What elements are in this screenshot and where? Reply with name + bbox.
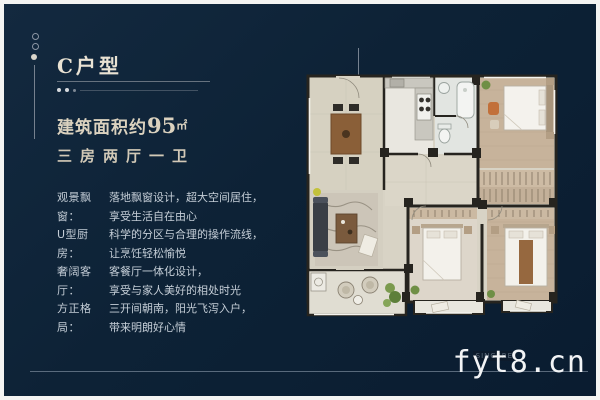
deco-dot-icon <box>32 33 39 40</box>
room-layout-line: 三房两厅一卫 <box>57 145 195 166</box>
building-area-line: 建筑面积约95㎡ <box>57 113 187 138</box>
feature-label: U型厨房： <box>57 226 109 263</box>
feature-label: 方正格局： <box>57 300 109 337</box>
deco-line <box>80 90 198 91</box>
deco-dot-icon <box>73 89 76 92</box>
deco-vertical-line <box>34 65 35 139</box>
feature-line: 客餐厅一体化设计， <box>109 263 292 282</box>
feature-item: 观景飘窗： 落地飘窗设计，超大空间居住， 享受生活自在由心 <box>57 189 292 226</box>
feature-line: 让烹饪轻松愉悦 <box>109 245 292 264</box>
site-watermark: fyt8.cn <box>453 345 586 380</box>
feature-line: 科学的分区与合理的操作流线， <box>109 226 292 245</box>
unit-type-title: C户型 <box>57 50 122 79</box>
feature-description: 客餐厅一体化设计， 享受与家人美好的相处时光 <box>109 263 292 300</box>
plan-leader-line <box>358 48 359 75</box>
deco-dot-icon <box>57 88 61 92</box>
title-underline <box>57 81 210 82</box>
brochure-background: C户型 建筑面积约95㎡ 三房两厅一卫 观景飘窗： 落地飘窗设计，超大空间居住，… <box>4 4 596 396</box>
area-unit-text: ㎡ <box>176 119 187 132</box>
feature-line: 三开间朝南，阳光飞泻入户， <box>109 300 292 319</box>
feature-line: 带来明朗好心情 <box>109 319 292 338</box>
area-value-text: 95 <box>147 113 176 138</box>
corridor-floor <box>385 156 477 206</box>
feature-item: U型厨房： 科学的分区与合理的操作流线， 让烹饪轻松愉悦 <box>57 226 292 263</box>
feature-line: 落地飘窗设计，超大空间居住， <box>109 189 292 208</box>
feature-list: 观景飘窗： 落地飘窗设计，超大空间居住， 享受生活自在由心 U型厨房： 科学的分… <box>57 189 292 337</box>
area-prefix-text: 建筑面积约 <box>57 118 147 138</box>
feature-label: 观景飘窗： <box>57 189 109 226</box>
feature-item: 奢阔客厅： 客餐厅一体化设计， 享受与家人美好的相处时光 <box>57 263 292 300</box>
deco-dot-icon <box>31 54 37 60</box>
feature-label: 奢阔客厅： <box>57 263 109 300</box>
feature-description: 科学的分区与合理的操作流线， 让烹饪轻松愉悦 <box>109 226 292 263</box>
deco-dot-icon <box>32 43 39 50</box>
feature-item: 方正格局： 三开间朝南，阳光飞泻入户， 带来明朗好心情 <box>57 300 292 337</box>
deco-dot-icon <box>65 88 69 92</box>
photo-frame: C户型 建筑面积约95㎡ 三房两厅一卫 观景飘窗： 落地飘窗设计，超大空间居住，… <box>0 0 600 400</box>
feature-description: 落地飘窗设计，超大空间居住， 享受生活自在由心 <box>109 189 292 226</box>
feature-description: 三开间朝南，阳光飞泻入户， 带来明朗好心情 <box>109 300 292 337</box>
feature-line: 享受生活自在由心 <box>109 208 292 227</box>
living-room-furniture <box>313 188 378 266</box>
title-dots-divider <box>57 88 198 92</box>
feature-line: 享受与家人美好的相处时光 <box>109 282 292 301</box>
floor-plan-image <box>306 74 558 320</box>
